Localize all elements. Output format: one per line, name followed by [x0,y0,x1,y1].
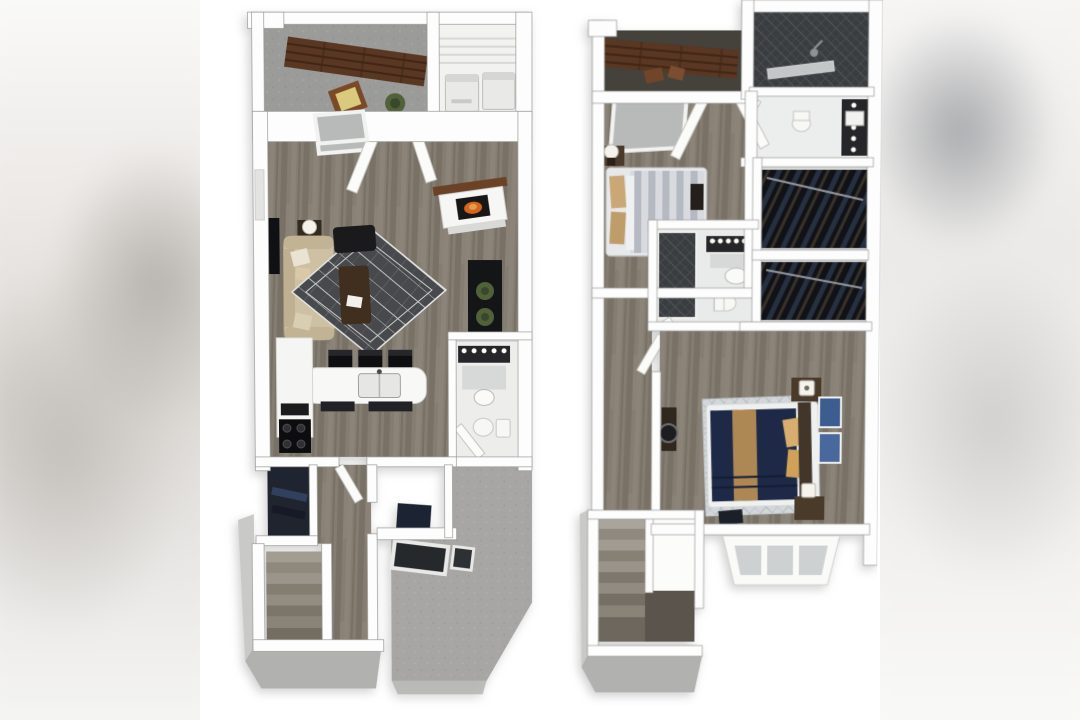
second-floor-plan [580,0,884,692]
bedroom2-bench [690,184,703,210]
entry-porch-floor [391,467,532,681]
left-wall-window [255,170,264,220]
first-floor-stairs [266,551,322,639]
right-blur-band [880,0,1080,720]
entry-mat [396,503,431,531]
floor-plans-svg [197,0,883,714]
bay-window [722,536,839,585]
left-blur-band [0,0,200,720]
stove [279,419,311,453]
washer [445,75,478,111]
media-unit [333,225,377,254]
foot-bench [718,509,743,525]
patio-plant [385,93,405,113]
dryer [483,73,515,109]
coffee-table [338,265,371,324]
console-with-plants [468,260,502,334]
closet-a [760,170,869,248]
side-table-lamp [297,220,321,238]
closet-b [760,262,869,320]
toilet [473,418,493,436]
bedroom2-window [610,95,687,151]
first-floor-plan [233,12,532,694]
master-nightstand-top [791,378,821,402]
left-blur-gradient [0,0,200,720]
hall-bath-shower [658,232,696,318]
master-dresser-mirror [659,407,677,451]
shower-head [810,49,818,57]
storage-closet-items [271,469,308,519]
right-blur-gradient [880,0,1080,720]
floor-plan-image [0,0,1080,720]
stair-landing [645,591,695,642]
kitchen-counter [276,338,313,453]
fireplace [433,177,513,236]
hallway-floor [602,296,652,512]
top-wall-window [315,111,367,143]
plans-perspective-wrap [197,0,883,714]
